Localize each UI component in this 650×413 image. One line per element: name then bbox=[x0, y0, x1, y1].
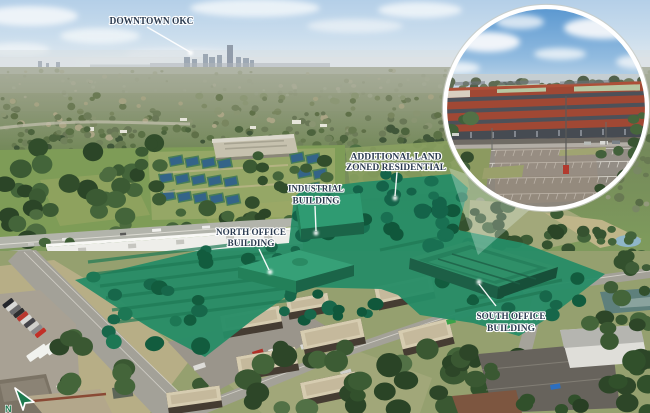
svg-text:BUILDING: BUILDING bbox=[228, 239, 276, 249]
svg-text:NORTH OFFICE: NORTH OFFICE bbox=[216, 228, 286, 238]
svg-text:N: N bbox=[5, 404, 12, 413]
svg-text:INDUSTRIAL: INDUSTRIAL bbox=[288, 185, 344, 195]
svg-text:BUILDING: BUILDING bbox=[487, 324, 536, 334]
svg-text:BUILDING: BUILDING bbox=[293, 197, 341, 207]
svg-text:ADDITIONAL LAND: ADDITIONAL LAND bbox=[351, 153, 442, 163]
svg-text:SOUTH OFFICE: SOUTH OFFICE bbox=[477, 312, 546, 322]
svg-text:DOWNTOWN OKC: DOWNTOWN OKC bbox=[110, 15, 194, 27]
svg-text:ZONED RESIDENTIAL: ZONED RESIDENTIAL bbox=[346, 163, 446, 173]
